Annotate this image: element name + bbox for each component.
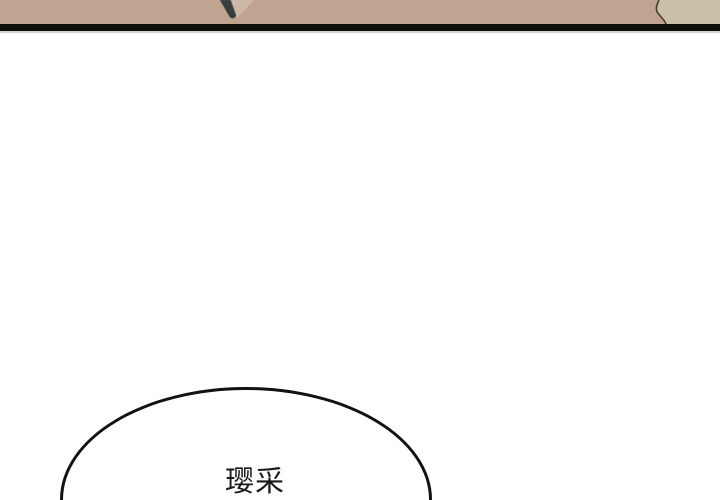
speech-bubble-text: 璎采 xyxy=(222,466,288,498)
panel-border xyxy=(0,24,720,31)
panel-artwork xyxy=(0,0,720,24)
comic-page: 璎采 xyxy=(0,0,720,500)
right-object-shape xyxy=(656,0,720,24)
panel-background xyxy=(0,0,720,24)
comic-panel-top xyxy=(0,0,720,24)
